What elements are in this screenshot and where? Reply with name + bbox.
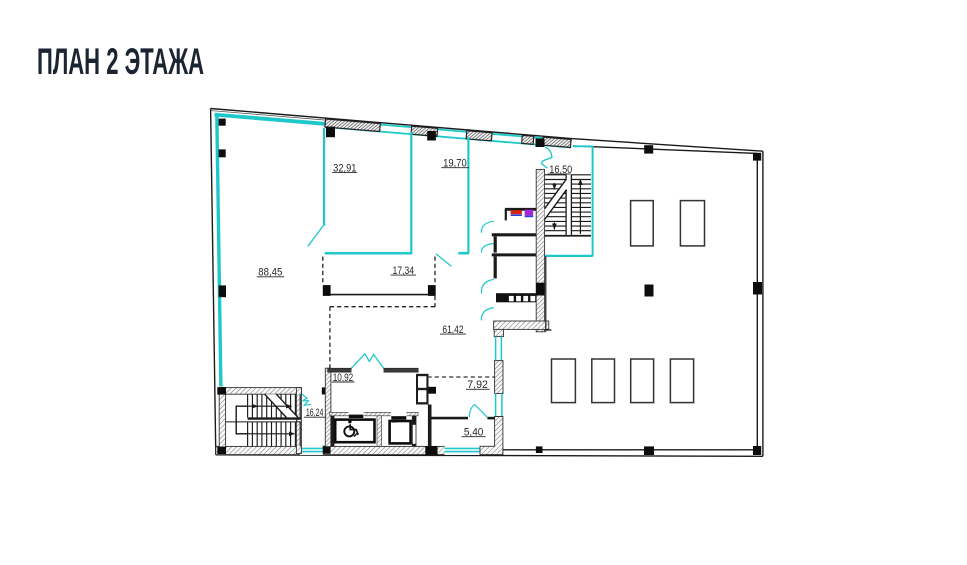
svg-text:ПЛАН 2 ЭТАЖА: ПЛАН 2 ЭТАЖА (37, 41, 204, 82)
